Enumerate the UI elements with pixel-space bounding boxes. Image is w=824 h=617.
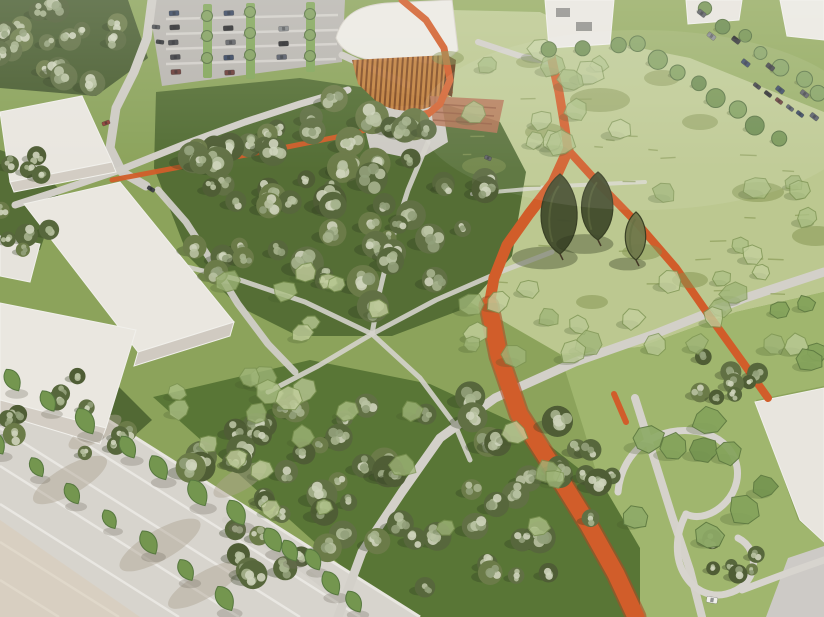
rendering-canvas xyxy=(0,0,824,617)
washes-layer xyxy=(0,0,824,617)
warm-tint xyxy=(0,0,824,617)
aerial-masterplan-rendering xyxy=(0,0,824,617)
